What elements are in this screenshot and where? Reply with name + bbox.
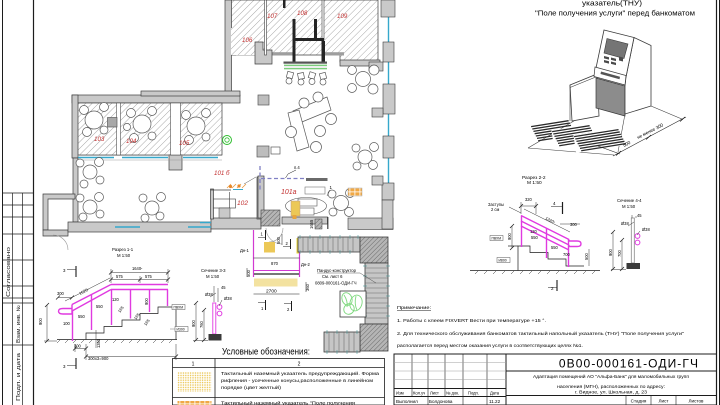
svg-text:1655: 1655 [309, 219, 314, 229]
svg-text:45: 45 [221, 285, 226, 290]
svg-text:575: 575 [116, 274, 124, 279]
svg-text:550: 550 [551, 245, 559, 250]
svg-text:320: 320 [525, 197, 533, 202]
svg-text:Пандус-конструктор: Пандус-конструктор [317, 268, 357, 273]
svg-text:101а: 101а [281, 189, 297, 196]
svg-text:300: 300 [74, 344, 82, 349]
svg-text:102: 102 [237, 200, 248, 207]
svg-text:700: 700 [563, 252, 571, 257]
svg-text:300: 300 [570, 222, 578, 227]
svg-text:550: 550 [96, 304, 104, 309]
svg-text:107: 107 [267, 13, 278, 20]
svg-text:Лист: Лист [659, 399, 670, 404]
svg-text:Выполнил: Выполнил [396, 399, 418, 404]
svg-text:Тактильный наземный указатель: Тактильный наземный указатель предупрежд… [221, 371, 380, 376]
svg-text:ПВХМ: ПВХМ [174, 306, 184, 310]
svg-text:Сечение 3-3: Сечение 3-3 [201, 268, 226, 273]
svg-text:1. Работы с клеем FIXVERT: 1. Работы с клеем FIXVERT Вести при темп… [397, 318, 546, 323]
svg-text:Подп.: Подп. [468, 391, 479, 396]
svg-text:М 1:50: М 1:50 [527, 180, 542, 186]
svg-text:104: 104 [126, 138, 137, 145]
svg-text:2 см: 2 см [491, 207, 499, 212]
svg-text:500: 500 [276, 236, 281, 244]
svg-text:г. Видное, ул. Школьная, д. 23: г. Видное, ул. Школьная, д. 23 [575, 390, 648, 395]
svg-text:760: 760 [199, 320, 204, 328]
svg-text:ПВХМ: ПВХМ [492, 237, 502, 241]
svg-text:Условные обозначения:: Условные обозначения: [222, 347, 310, 357]
svg-text:Дата: Дата [490, 391, 500, 396]
svg-text:120: 120 [530, 229, 538, 234]
svg-text:рифления - усеченные конусы,ра: рифления - усеченные конусы,расположенны… [221, 378, 373, 383]
svg-text:2. Для технического обслуж: 2. Для технического обслуживания банкома… [397, 330, 684, 336]
svg-text:105: 105 [179, 140, 190, 147]
svg-text:Кол.уч: Кол.уч [413, 391, 425, 396]
svg-text:700: 700 [617, 249, 622, 257]
svg-text:Ø38: Ø38 [642, 227, 650, 232]
svg-text:Ø38: Ø38 [224, 296, 232, 301]
svg-text:550: 550 [78, 314, 86, 319]
svg-text:Примечание:: Примечание: [397, 305, 431, 310]
svg-text:И300: И300 [177, 328, 185, 332]
svg-text:870: 870 [271, 261, 279, 266]
svg-text:101 б: 101 б [214, 170, 230, 177]
svg-text:Адаптация помещений АО "Альфа-: Адаптация помещений АО "Альфа-Банк" для … [533, 374, 690, 379]
svg-text:Разрез 1-1: Разрез 1-1 [112, 247, 134, 252]
svg-text:населения (МГН), расположенных: населения (МГН), расположенных по адресу… [557, 384, 665, 389]
svg-text:1640*: 1640* [132, 266, 143, 271]
svg-text:500: 500 [584, 252, 589, 260]
svg-text:М 1:50: М 1:50 [622, 204, 636, 209]
svg-text:550: 550 [531, 235, 539, 240]
svg-text:И800: И800 [499, 259, 507, 263]
svg-text:11.22: 11.22 [489, 399, 501, 404]
svg-text:1: 1 [192, 362, 195, 368]
svg-text:120: 120 [112, 297, 120, 302]
svg-text:М 1:50: М 1:50 [206, 274, 220, 279]
svg-text:900: 900 [507, 232, 512, 240]
svg-text:900: 900 [191, 319, 196, 327]
svg-text:2: 2 [298, 362, 301, 368]
svg-text:Подп. и дата: Подп. и дата [16, 353, 22, 401]
svg-text:Взам. инв. №: Взам. инв. № [16, 305, 22, 343]
svg-text:575: 575 [145, 274, 153, 279]
svg-text:100: 100 [63, 321, 71, 326]
svg-text:Ø38: Ø38 [621, 221, 629, 226]
svg-text:2: 2 [551, 286, 554, 291]
svg-text:Стадия: Стадия [631, 399, 647, 404]
svg-text:См. лист 6: См. лист 6 [322, 274, 343, 279]
svg-text:Дн-1: Дн-1 [240, 248, 250, 253]
svg-text:45: 45 [637, 213, 642, 218]
svg-text:Тактильный наземный указатель: Тактильный наземный указатель "Поле полу… [221, 401, 355, 405]
svg-text:Лист: Лист [430, 391, 439, 396]
svg-text:М 1:50: М 1:50 [117, 253, 131, 258]
svg-text:Сечение 4-4: Сечение 4-4 [617, 198, 642, 203]
svg-text:Согласовано: Согласовано [6, 247, 12, 297]
svg-text:900: 900 [144, 297, 149, 305]
svg-text:"Поле получения услуги" пере: "Поле получения услуги" перед банкоматом [535, 10, 695, 18]
svg-text:900: 900 [608, 248, 613, 256]
svg-text:300: 300 [57, 291, 65, 296]
svg-text:0809-000161-ОДИ-ГЧ: 0809-000161-ОДИ-ГЧ [315, 281, 357, 286]
svg-text:Болдонова: Болдонова [429, 399, 453, 404]
svg-text:103: 103 [94, 136, 105, 143]
svg-text:108: 108 [297, 10, 308, 17]
svg-text:0В00-000161-ОДИ-ГЧ: 0В00-000161-ОДИ-ГЧ [559, 357, 699, 371]
svg-text:Изм: Изм [396, 391, 404, 396]
svg-text:п.4: п.4 [294, 165, 300, 170]
svg-text:Листов: Листов [689, 399, 704, 404]
svg-text:106: 106 [242, 37, 253, 44]
svg-text:109: 109 [337, 13, 348, 20]
svg-text:4: 4 [553, 201, 556, 206]
svg-text:указатель(ТНУ): указатель(ТНУ) [582, 1, 642, 8]
svg-text:порядке (цвет желтый): порядке (цвет желтый) [221, 385, 282, 390]
svg-text:Ø38: Ø38 [205, 292, 213, 297]
svg-text:900: 900 [38, 317, 43, 325]
svg-text:Дн-2: Дн-2 [301, 262, 311, 267]
svg-text:располагается перед местом: располагается перед местом оказания услу… [397, 343, 583, 348]
svg-text:2700: 2700 [266, 289, 277, 295]
svg-text:300x3=900: 300x3=900 [88, 356, 109, 361]
svg-text:1350: 1350 [96, 338, 101, 348]
svg-text:№ док.: № док. [446, 391, 459, 396]
